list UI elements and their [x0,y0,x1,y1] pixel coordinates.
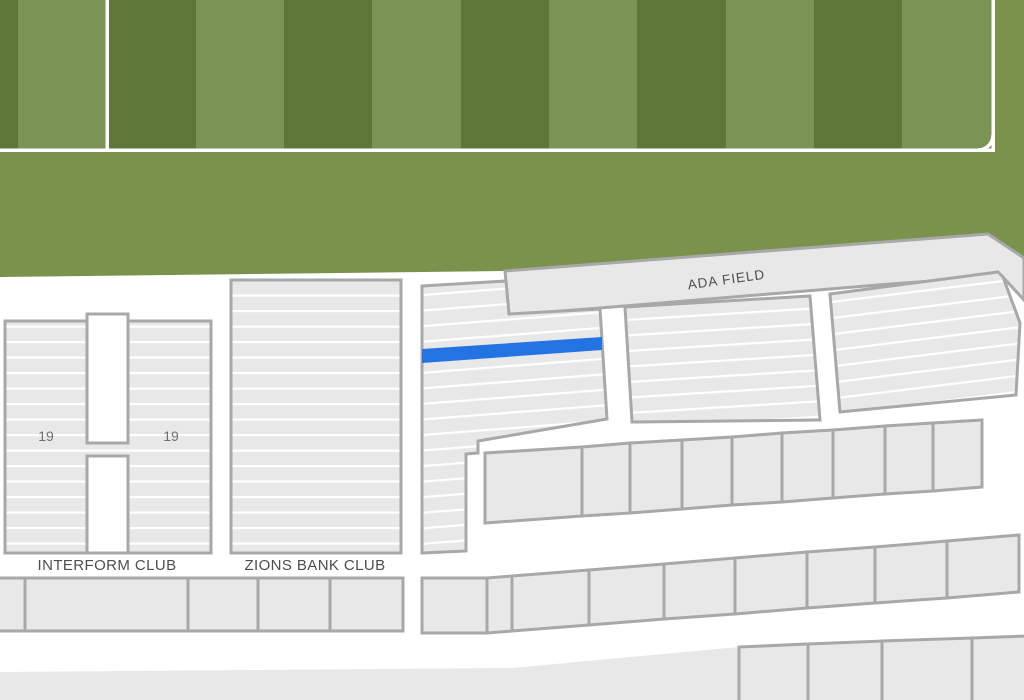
suite-box[interactable] [885,423,933,494]
suite-box[interactable] [422,578,487,633]
suite-box[interactable] [782,430,833,502]
pitch-stripe [372,0,461,151]
section-mid-right[interactable] [625,296,820,422]
suite-box[interactable] [330,578,403,631]
suite-box[interactable] [808,641,882,700]
section-19-interform[interactable]: 19 19 [5,314,211,553]
suite-box[interactable] [485,447,582,523]
suite-box[interactable] [882,638,972,700]
suite-box[interactable] [947,535,1019,598]
suite-box[interactable] [664,558,735,619]
suite-box[interactable] [25,578,188,631]
suite-box[interactable] [732,433,782,505]
section-number: 19 [163,428,179,444]
section-number: 19 [38,428,54,444]
suite-box[interactable] [258,578,330,631]
suite-box[interactable] [807,547,875,608]
zions-bank-club-label: ZIONS BANK CLUB [244,557,385,574]
touchline [0,149,995,153]
pitch-stripe [18,0,106,151]
bottom-concourse [0,636,1024,700]
suites-row-lower-right [487,535,1019,633]
suite-box[interactable] [0,578,25,631]
suite-box[interactable] [188,578,258,631]
suite-box[interactable] [875,541,947,603]
suite-box[interactable] [630,440,682,513]
suite-box[interactable] [512,570,589,631]
suite-box[interactable] [735,552,807,614]
suite-box[interactable] [682,437,732,509]
suite-box[interactable] [582,443,630,516]
vomitory-notch [87,314,128,443]
pitch-stripe [902,0,993,151]
stadium-seat-map: ADA FIELD 19 19 INTERFORM CLUB ZIONS BAN… [0,0,1024,700]
suite-box[interactable] [972,636,1024,700]
pitch-base [0,0,993,151]
section-zions-bank-club[interactable] [231,280,401,553]
pitch-line-vertical [106,0,110,151]
suites-row-upper [485,420,982,523]
suite-box[interactable] [487,576,512,633]
suite-box[interactable] [589,564,664,625]
suites-row-lower-left [0,578,487,633]
pitch-stripe [196,0,284,151]
interform-club-label: INTERFORM CLUB [38,557,177,574]
soccer-pitch [0,0,1024,277]
suite-box[interactable] [739,644,808,700]
section-top-right[interactable] [830,272,1020,412]
pitch-stripe [549,0,637,151]
pitch-stripe [726,0,814,151]
suite-box[interactable] [933,420,982,491]
goal-line [992,0,996,151]
vomitory-notch [87,456,128,553]
suite-box[interactable] [833,426,885,498]
